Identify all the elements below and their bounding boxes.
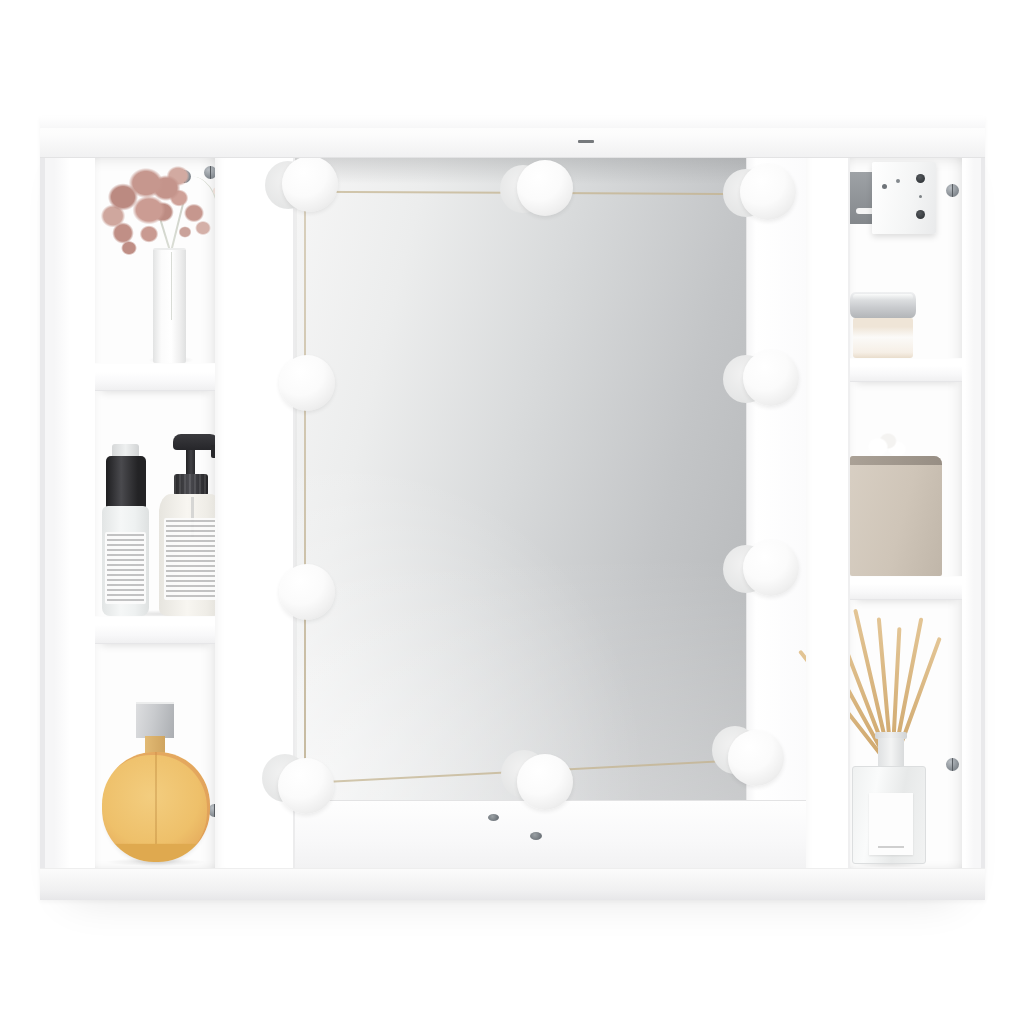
- cabinet-left-wall: [40, 158, 95, 868]
- shelf-pin-hole: [488, 814, 499, 821]
- mirror: [295, 158, 746, 800]
- screw: [946, 184, 959, 197]
- wall-mount-bracket: [872, 162, 936, 234]
- right-shelf-lower: [850, 576, 962, 600]
- spray-bottle-label: [105, 532, 146, 604]
- right-shelf-upper: [850, 358, 962, 382]
- led-bulb: [282, 156, 338, 212]
- led-bulb: [728, 730, 784, 786]
- bracket-hole: [896, 179, 900, 183]
- pump-bottle-collar: [174, 474, 208, 496]
- cabinet-right-wall: [962, 158, 985, 868]
- led-bulb-globe: [728, 730, 784, 786]
- led-bulb-globe: [740, 164, 796, 220]
- bracket-hole: [916, 210, 925, 219]
- bracket-hole: [919, 195, 922, 198]
- mirror-right-frame: [746, 158, 806, 800]
- right-divider-wall: [806, 158, 850, 868]
- tissue-box: [850, 456, 942, 576]
- perfume-bottle: [102, 752, 210, 862]
- led-bulb-globe: [279, 564, 335, 620]
- product-photo: [0, 0, 1024, 1024]
- perfume-bottle-cap: [136, 702, 174, 738]
- frame-seam-mark: [578, 140, 594, 143]
- bracket-hole: [882, 184, 887, 189]
- led-bulb: [517, 754, 573, 810]
- pump-bottle-label: [164, 518, 217, 600]
- led-bulb: [740, 164, 796, 220]
- diffuser-label: [869, 793, 913, 855]
- spray-bottle-cap: [106, 456, 146, 508]
- candle-jar: [853, 318, 913, 358]
- led-bulb: [279, 564, 335, 620]
- bracket-hole: [916, 174, 925, 183]
- led-bulb: [743, 350, 799, 406]
- led-bulb-globe: [743, 540, 799, 596]
- led-bulb-globe: [279, 355, 335, 411]
- led-bulb-globe: [517, 754, 573, 810]
- left-shelf-upper: [95, 363, 215, 391]
- led-wire-left: [304, 194, 306, 784]
- shelf-pin-hole: [530, 832, 542, 840]
- glass-vase: [153, 248, 186, 363]
- cabinet-top-panel: [40, 116, 985, 158]
- led-bulb: [279, 355, 335, 411]
- led-bulb-globe: [282, 156, 338, 212]
- pump-bottle-head: [173, 434, 220, 450]
- candle-jar-lid: [850, 292, 916, 318]
- led-bulb-globe: [517, 160, 573, 216]
- led-bulb: [517, 160, 573, 216]
- diffuser-bottle-neck: [878, 738, 904, 768]
- cabinet-bottom-panel: [40, 868, 985, 900]
- pump-bottle-stem: [186, 450, 195, 476]
- screw: [946, 758, 959, 771]
- mirror-bottom-ledge: [295, 800, 806, 868]
- led-bulb: [743, 540, 799, 596]
- led-bulb: [278, 758, 334, 814]
- led-bulb-globe: [743, 350, 799, 406]
- reed-diffuser-bottle: [852, 766, 926, 864]
- mirror-cabinet: [40, 116, 985, 900]
- left-shelf-lower: [95, 616, 215, 644]
- led-bulb-globe: [278, 758, 334, 814]
